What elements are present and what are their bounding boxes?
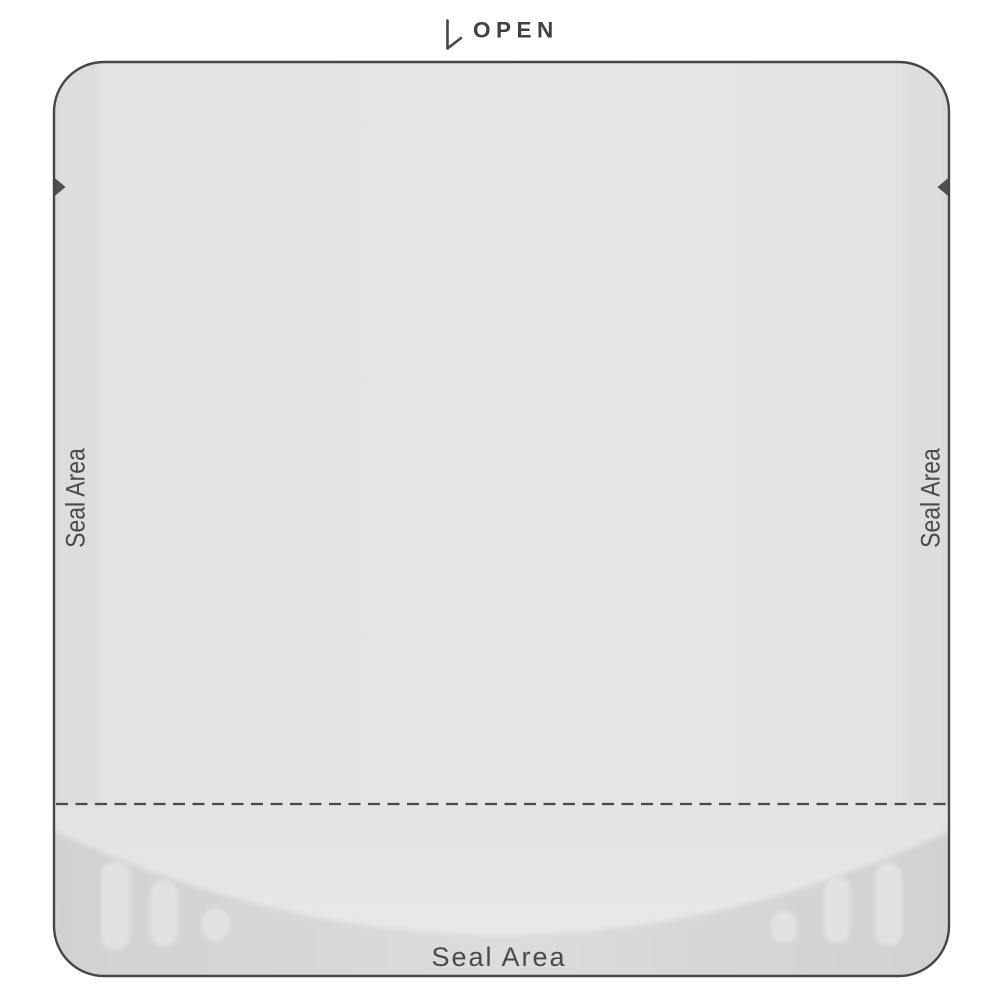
svg-text:Seal Area: Seal Area xyxy=(916,448,946,548)
svg-text:Seal Area: Seal Area xyxy=(431,942,566,972)
svg-text:Seal Area: Seal Area xyxy=(61,448,91,548)
svg-text:OPEN: OPEN xyxy=(473,18,559,43)
